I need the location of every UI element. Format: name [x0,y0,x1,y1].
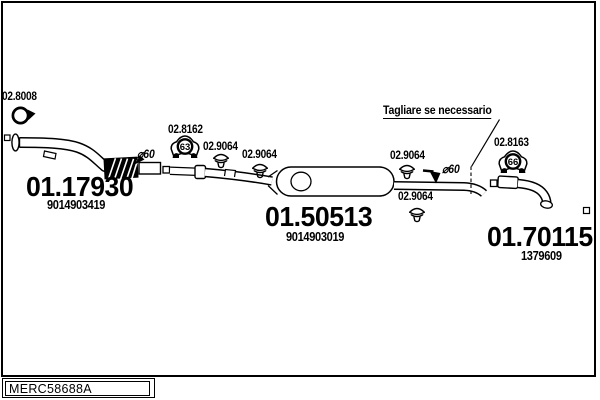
label-clamp-1: 02.9064 [203,140,238,152]
parts-diagram-page: 63 66 02.8008 02.8162 02.9064 02.9064 02… [0,0,600,400]
cut-note: Tagliare se necessario [383,104,492,119]
mount-front-size: 63 [180,142,191,153]
part-ref-front-pipe: 9014903419 [47,198,105,211]
tailpipe-sleeve [498,176,519,189]
tailpipe-drawing [491,176,590,214]
label-clamp-4: 02.9064 [398,190,433,202]
joint-square [163,167,170,174]
mount-rear-size: 66 [508,157,519,168]
part-ref-muffler: 9014903019 [286,230,344,243]
pipe-joint [195,166,206,179]
inlet-flange [12,134,19,151]
diameter-label-left: ⌀60 [137,150,155,162]
label-mount-front: 02.8162 [168,123,203,135]
ring-clamp-icon [13,108,36,123]
mount-point-marker-right [584,208,590,214]
part-code-muffler: 01.50513 [265,203,372,231]
pipe-bracket-top [225,170,236,178]
pipe-bracket [44,151,57,159]
label-ring-clamp: 02.8008 [2,90,37,102]
label-mount-rear: 02.8163 [494,136,529,148]
joint-square-rear [491,180,498,187]
label-clamp-3: 02.9064 [390,149,425,161]
diameter-label-right: ⌀60 [442,165,460,177]
muffler-body [277,167,395,196]
part-code-tailpipe: 01.70115 [487,223,593,251]
clamp-icon-4 [410,209,425,222]
pipe-sleeve-end [139,163,161,175]
clamp-icon-1 [214,155,229,168]
label-clamp-2: 02.9064 [242,148,277,160]
mount-point-marker-left [5,135,11,141]
clamp-icon-3 [400,166,415,179]
part-ref-tailpipe: 1379609 [521,249,562,262]
drawing-code: MERC58688A [9,383,92,396]
